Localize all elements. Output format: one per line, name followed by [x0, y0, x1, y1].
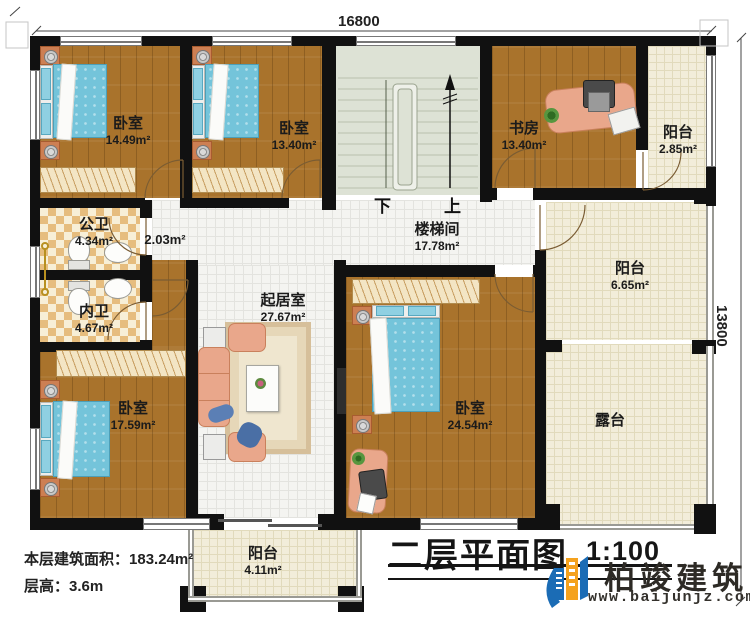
wardrobe	[40, 167, 136, 193]
company-logo-icon	[542, 546, 592, 612]
armchair	[228, 323, 266, 352]
dimension-width: 16800	[338, 13, 380, 30]
tv	[337, 368, 346, 414]
dimension-height: 13800	[713, 305, 730, 347]
room-label-bedroom-bc: 卧室 24.54m²	[448, 400, 493, 432]
wall-segment	[30, 270, 152, 280]
bed-pillow	[193, 103, 203, 135]
wall-segment	[535, 250, 546, 518]
wall-segment	[480, 188, 497, 200]
plant	[352, 452, 365, 465]
railing	[188, 596, 362, 602]
wall-post	[694, 188, 716, 204]
bed-pillow	[41, 103, 51, 135]
towel-rail	[44, 248, 46, 290]
bed-pillow	[408, 306, 436, 316]
wall-segment	[480, 36, 492, 202]
wardrobe	[352, 279, 480, 304]
nightstand	[40, 478, 60, 497]
wall-post	[546, 504, 560, 530]
window	[60, 36, 142, 46]
sink	[104, 278, 132, 299]
wardrobe	[192, 167, 284, 193]
window	[143, 518, 210, 530]
wall-segment	[140, 340, 152, 348]
nightstand	[352, 415, 372, 434]
window	[30, 428, 40, 490]
floor-bl-entry	[152, 260, 186, 348]
window	[706, 55, 716, 167]
room-label-public-bath: 公卫 4.34m²	[75, 216, 113, 248]
window	[356, 36, 456, 46]
wall-segment	[186, 260, 198, 518]
floor-area-text: 本层建筑面积：183.24m²	[24, 548, 193, 569]
wall-post	[318, 514, 346, 530]
computer-monitor-screen	[588, 92, 610, 112]
railing	[560, 524, 694, 530]
wall-segment	[192, 198, 289, 208]
wall-segment	[346, 265, 495, 277]
room-label-stairwell: 楼梯间 17.78m²	[414, 221, 459, 253]
room-label-balcony-right: 阳台 6.65m²	[611, 260, 649, 292]
nightstand	[40, 380, 60, 399]
bed-pillow	[41, 68, 51, 100]
wall-segment	[140, 255, 152, 302]
floor-terrace	[546, 344, 706, 526]
page-title: 二层平面图	[388, 528, 568, 577]
wall-post	[546, 340, 562, 352]
sliding-door	[218, 519, 272, 522]
nightstand	[192, 46, 212, 65]
company-website: www.baijunjz.com	[588, 589, 750, 606]
wardrobe	[56, 350, 186, 377]
nightstand	[40, 141, 60, 160]
toilet-tank	[68, 260, 90, 270]
floor-plan-canvas: 16800 13800 下 上 卧室 14.49m² 卧室 13.40m² 书房…	[0, 0, 750, 622]
towel-rail-end	[41, 288, 49, 296]
wall-segment	[322, 36, 336, 210]
room-label-terrace: 露台	[595, 412, 625, 430]
window	[212, 36, 292, 46]
railing	[706, 346, 714, 504]
bed-pillow	[41, 405, 51, 438]
wall-segment	[30, 518, 143, 530]
floor-balcony-tr	[648, 46, 706, 188]
stair-down-label: 下	[374, 192, 391, 217]
stair-up-label: 上	[444, 192, 461, 217]
floor-stairs	[336, 46, 480, 195]
bed-pillow	[376, 306, 404, 316]
bed-pillow	[41, 440, 51, 473]
floor-height-text: 层高：3.6m	[24, 575, 103, 596]
room-label-private-bath: 内卫 4.67m²	[75, 303, 113, 335]
wall-segment	[140, 200, 152, 218]
railing	[356, 530, 362, 600]
room-label-hall: 2.03m²	[144, 232, 185, 248]
nightstand	[192, 141, 212, 160]
room-label-bedroom-bl: 卧室 17.59m²	[111, 400, 156, 432]
wall-segment	[180, 36, 192, 208]
towel-rail-end	[41, 242, 49, 250]
wall-post	[694, 504, 716, 534]
flower-decoration	[255, 378, 266, 389]
nightstand	[40, 46, 60, 65]
room-label-bedroom-t2: 卧室 13.40m²	[272, 120, 317, 152]
dimension-corner-box	[6, 22, 28, 48]
wall-segment	[30, 198, 145, 208]
room-label-study: 书房 13.40m²	[502, 120, 547, 152]
window	[30, 246, 40, 298]
wall-segment	[533, 188, 642, 200]
room-label-balcony-bottom: 阳台 4.11m²	[244, 545, 281, 577]
side-table	[203, 434, 226, 460]
floor-corridor	[152, 200, 535, 265]
room-label-living: 起居室 27.67m²	[260, 292, 305, 324]
bed-pillow	[193, 68, 203, 100]
sliding-door	[268, 524, 322, 527]
wall-segment	[636, 36, 648, 150]
room-label-bedroom-tl: 卧室 14.49m²	[106, 115, 151, 147]
window	[30, 70, 40, 140]
room-label-balcony-tr: 阳台 2.85m²	[659, 124, 697, 156]
